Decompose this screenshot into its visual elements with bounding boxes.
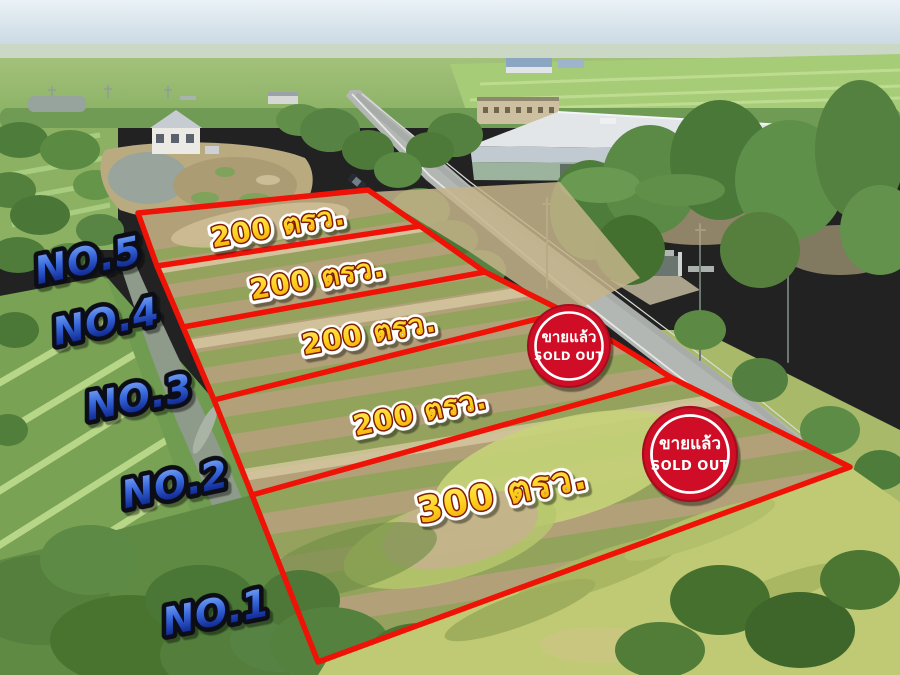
badge-thai-text: ขายแล้ว [659,434,721,454]
distant-pond [28,96,86,112]
scene: 200 ตรว. 200 ตรว. 200 ตรว. 200 ตรว. 200 … [0,0,900,675]
badge-en-text: SOLD OUT [651,459,730,474]
badge-circle [643,407,737,501]
distant-white-building [268,92,298,104]
sold-out-badge-2: ขายแล้ว SOLD OUT [643,407,737,501]
sold-out-badge-1: ขายแล้ว SOLD OUT [528,305,610,387]
badge-circle [528,305,610,387]
badge-thai-text: ขายแล้ว [542,328,597,346]
aerial-land-photo: 200 ตรว. 200 ตรว. 200 ตรว. 200 ตรว. 200 … [0,0,900,675]
badge-en-text: SOLD OUT [534,349,604,363]
